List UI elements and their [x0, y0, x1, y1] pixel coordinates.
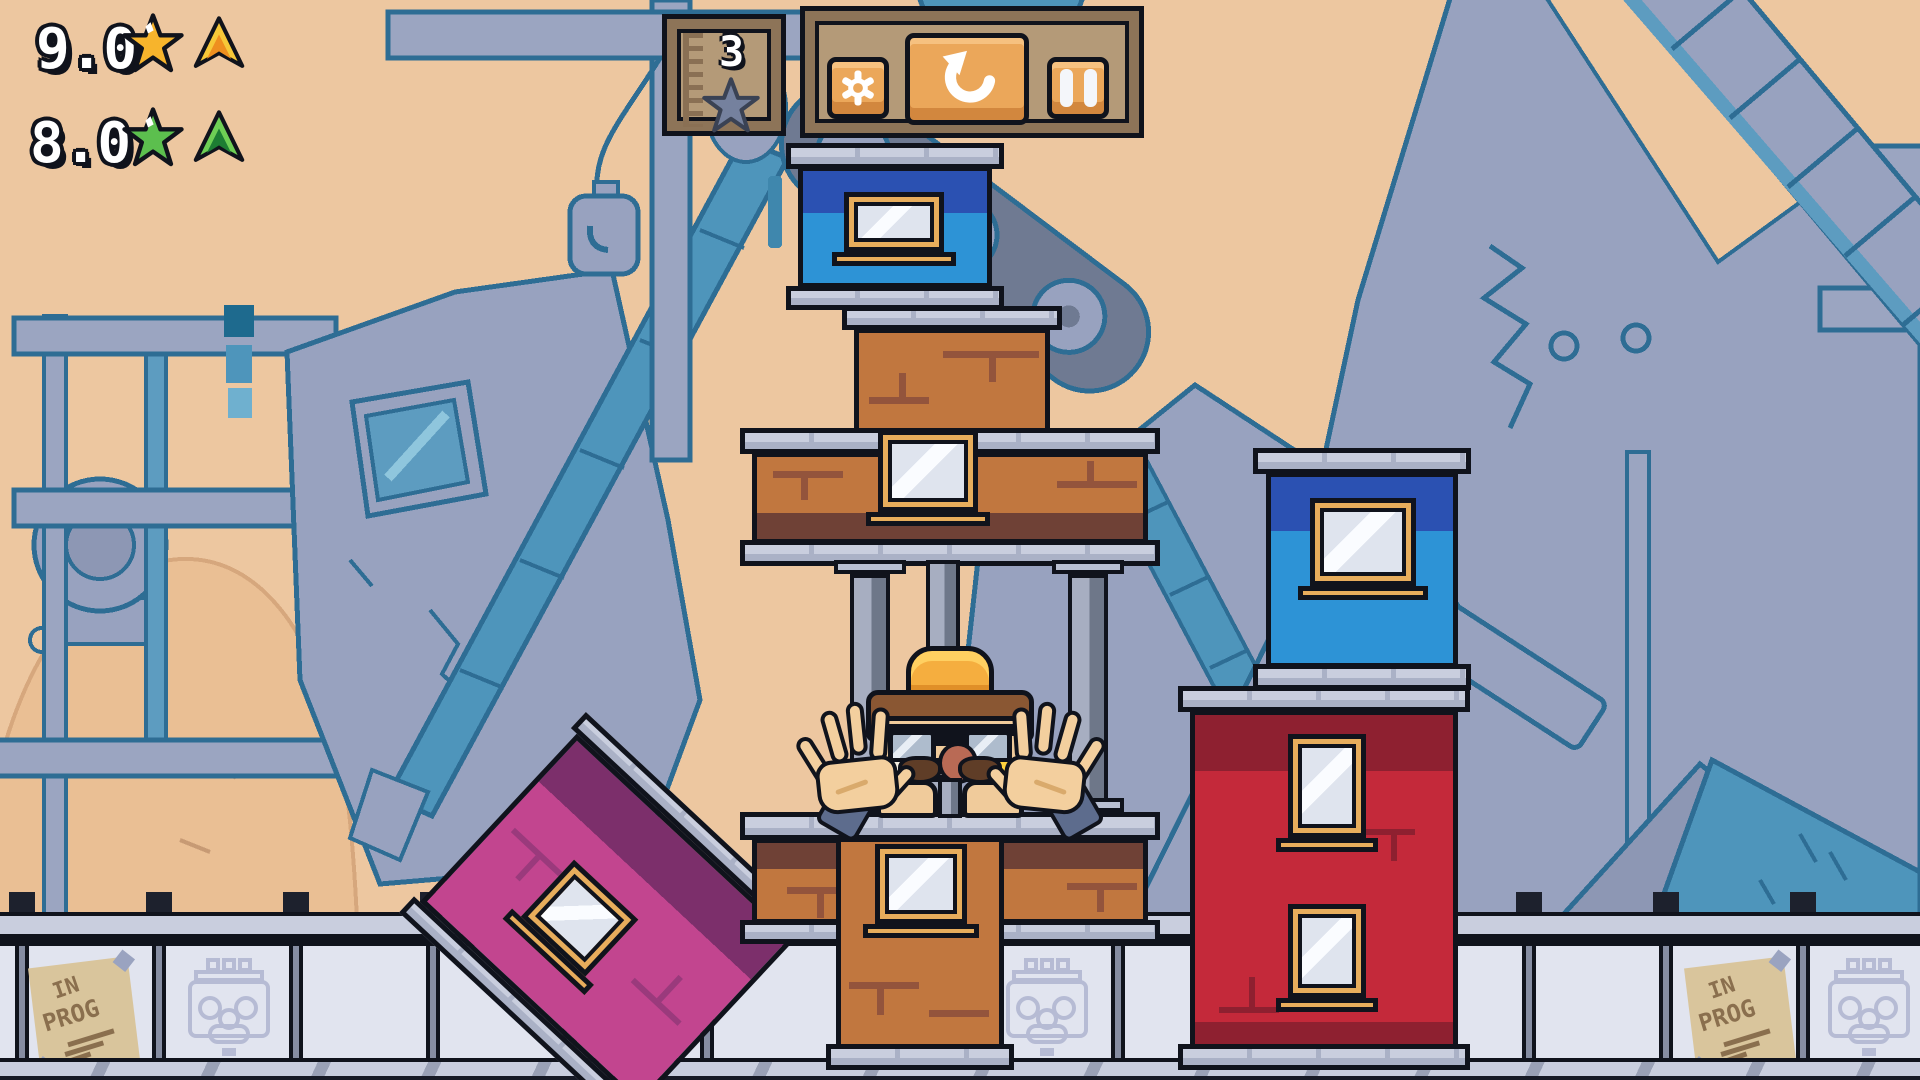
- pause-icon: [1060, 69, 1097, 107]
- gauge-value: 3: [719, 31, 744, 73]
- height-gauge-panel: 3: [662, 14, 786, 136]
- star-gray-icon: [701, 77, 761, 135]
- star-gold-icon: [122, 12, 184, 76]
- current-height-value: 8.0: [30, 116, 131, 172]
- arrow-up-green-icon: [190, 108, 248, 170]
- game-stage: IN PROG IN PROG: [0, 0, 1920, 1080]
- controls-panel: [800, 6, 1144, 138]
- hud: 9.0 8.0 3: [0, 0, 1920, 1080]
- restart-icon: [937, 49, 997, 109]
- star-green-icon: [122, 106, 184, 170]
- arrow-up-gold-icon: [190, 14, 248, 76]
- pause-button[interactable]: [1047, 57, 1109, 119]
- restart-button[interactable]: [905, 33, 1029, 125]
- gear-icon: [837, 67, 879, 109]
- settings-button[interactable]: [827, 57, 889, 119]
